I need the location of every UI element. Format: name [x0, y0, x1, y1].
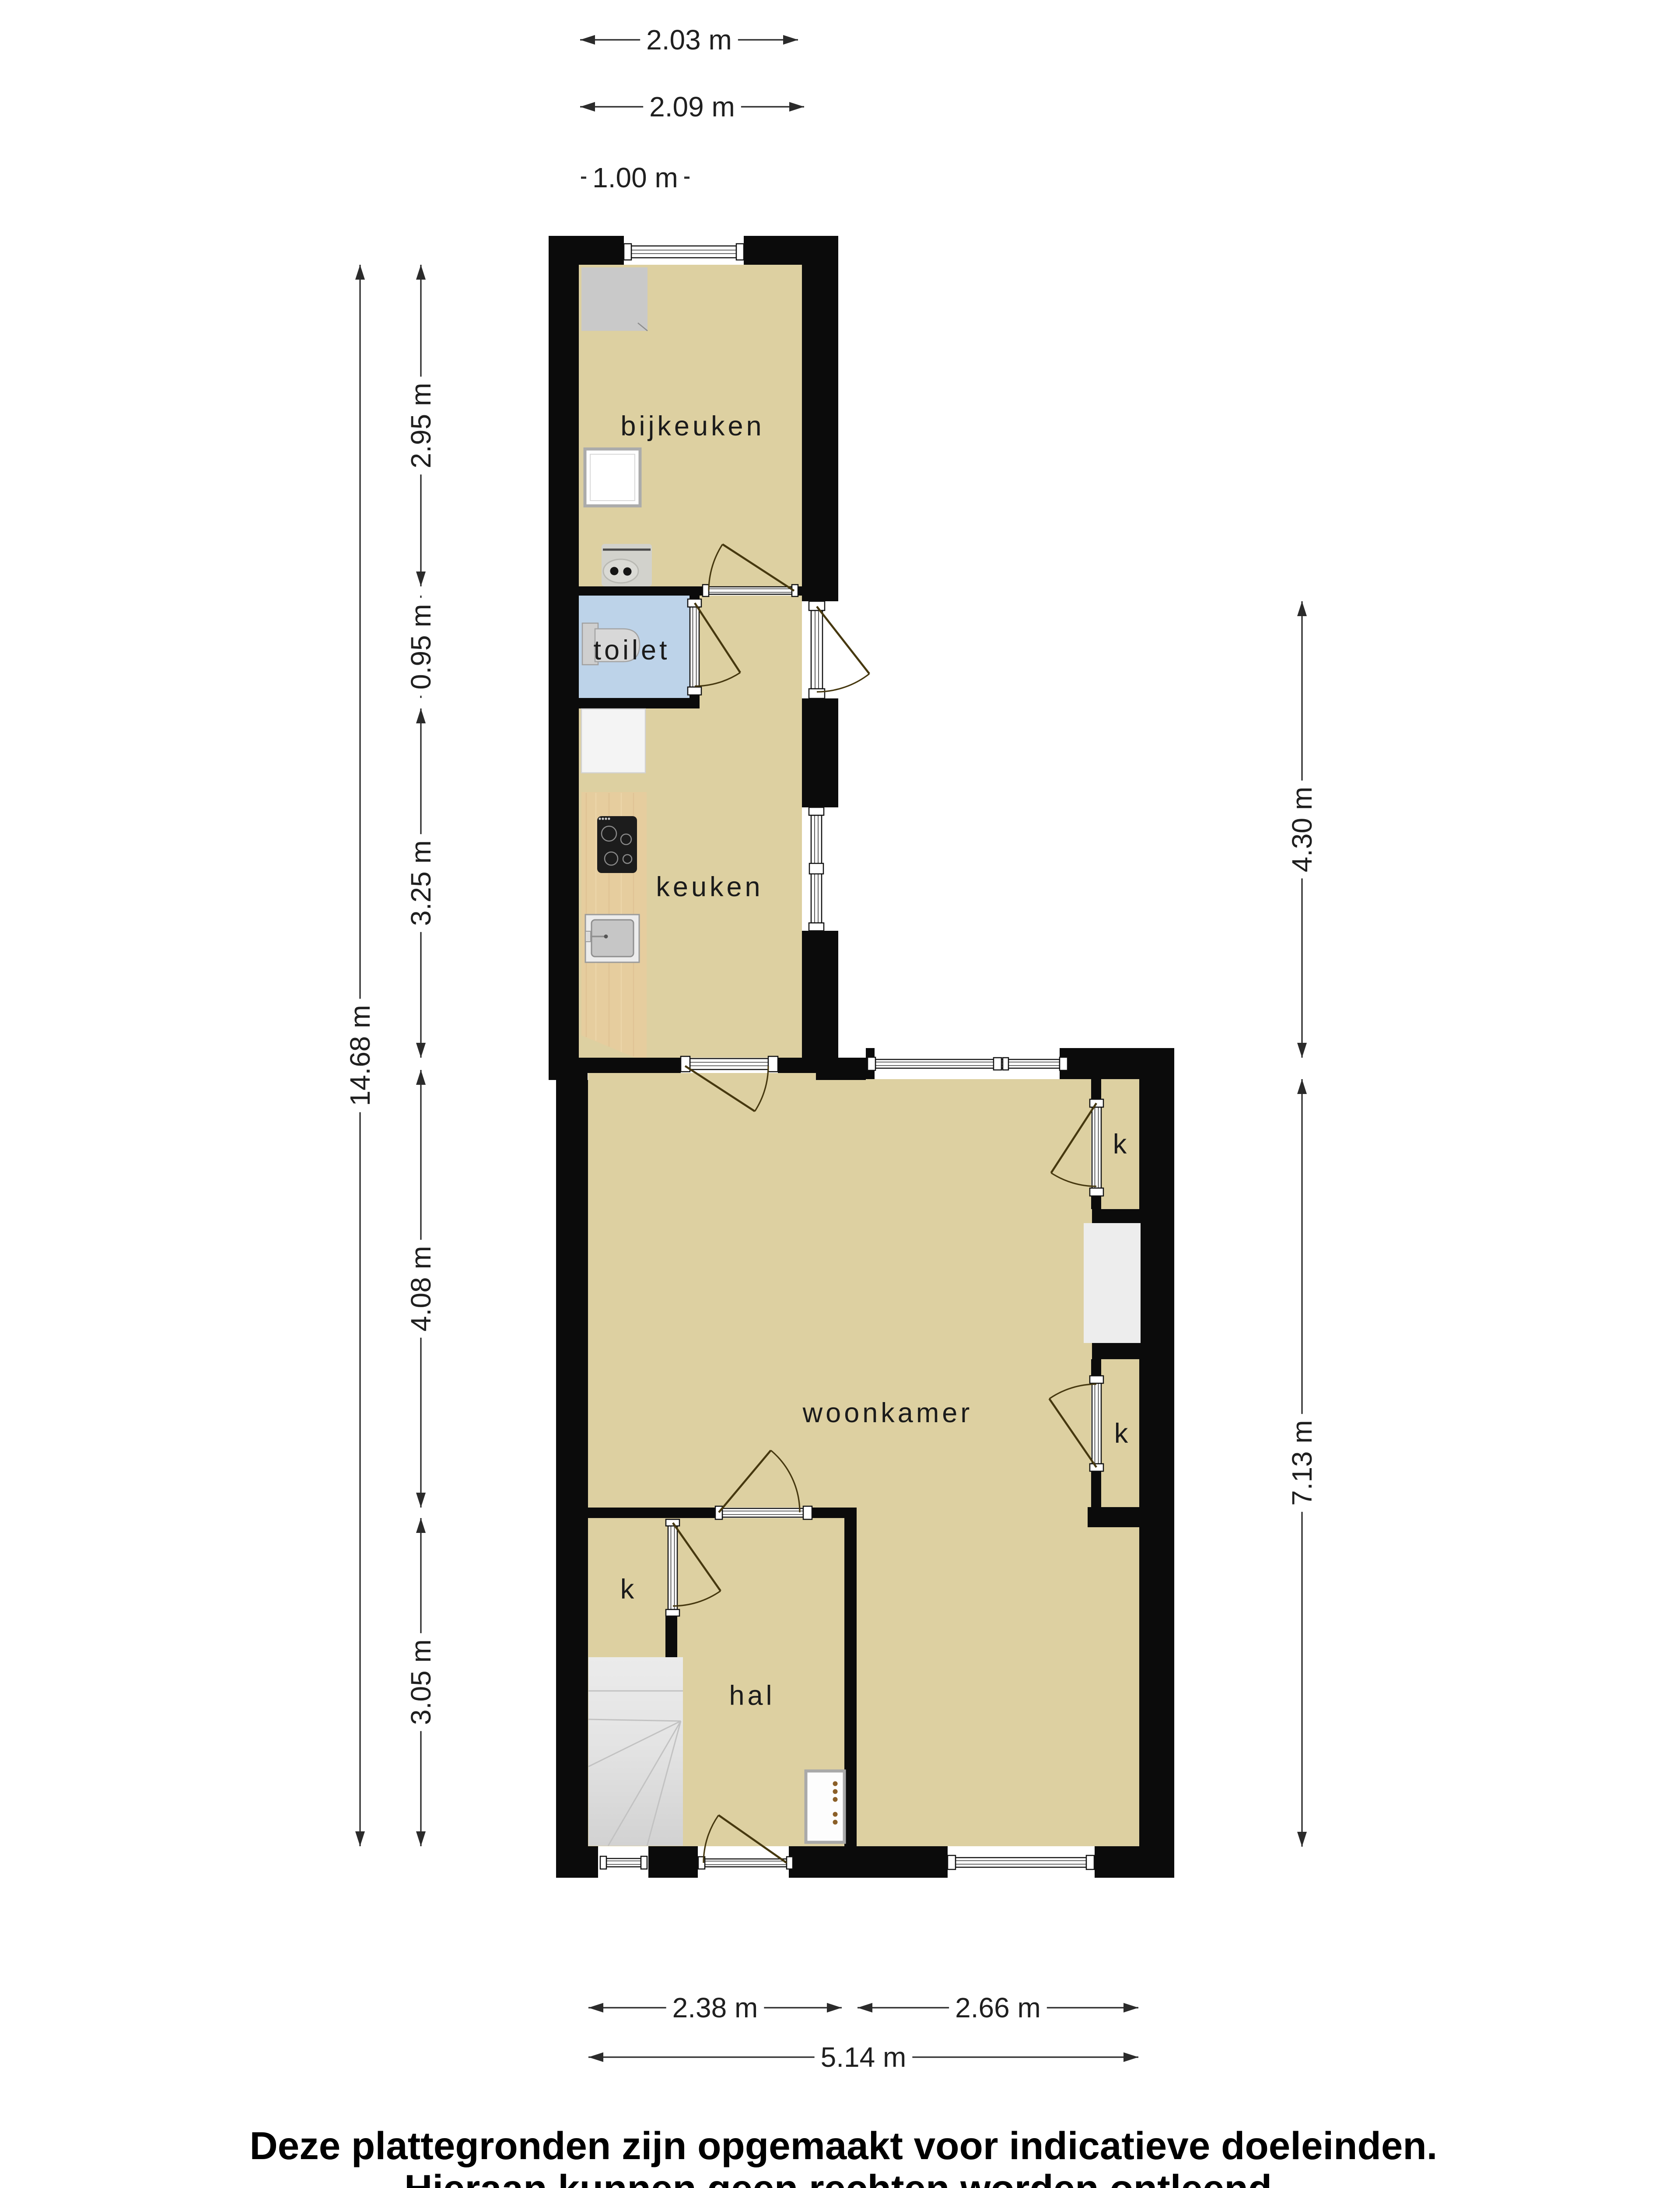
svg-text:Hieraan kunnen geen rechten wo: Hieraan kunnen geen rechten worden ontle… [404, 2167, 1283, 2188]
svg-text:5.14 m: 5.14 m [821, 2041, 906, 2073]
svg-text:k: k [1113, 1129, 1130, 1160]
svg-text:keuken: keuken [656, 872, 763, 902]
svg-text:2.95 m: 2.95 m [405, 383, 437, 469]
svg-text:4.08 m: 4.08 m [405, 1246, 437, 1332]
svg-text:Deze plattegronden zijn opgema: Deze plattegronden zijn opgemaakt voor i… [249, 2124, 1437, 2167]
svg-text:0.95 m: 0.95 m [405, 604, 437, 690]
svg-text:k: k [620, 1574, 637, 1605]
svg-text:toilet: toilet [593, 635, 670, 666]
svg-text:k: k [1114, 1418, 1131, 1449]
svg-text:2.38 m: 2.38 m [672, 1992, 758, 2023]
svg-text:2.03 m: 2.03 m [646, 24, 732, 56]
svg-text:14.68 m: 14.68 m [344, 1005, 376, 1106]
svg-text:1.00 m: 1.00 m [592, 162, 678, 193]
svg-text:woonkamer: woonkamer [802, 1398, 973, 1428]
svg-text:3.25 m: 3.25 m [405, 840, 437, 926]
svg-text:hal: hal [729, 1680, 775, 1711]
svg-text:2.09 m: 2.09 m [649, 91, 735, 123]
svg-text:2.66 m: 2.66 m [955, 1992, 1041, 2023]
svg-text:bijkeuken: bijkeuken [620, 411, 764, 442]
svg-text:3.05 m: 3.05 m [405, 1639, 437, 1725]
svg-text:4.30 m: 4.30 m [1286, 787, 1318, 873]
svg-text:7.13 m: 7.13 m [1286, 1420, 1318, 1506]
